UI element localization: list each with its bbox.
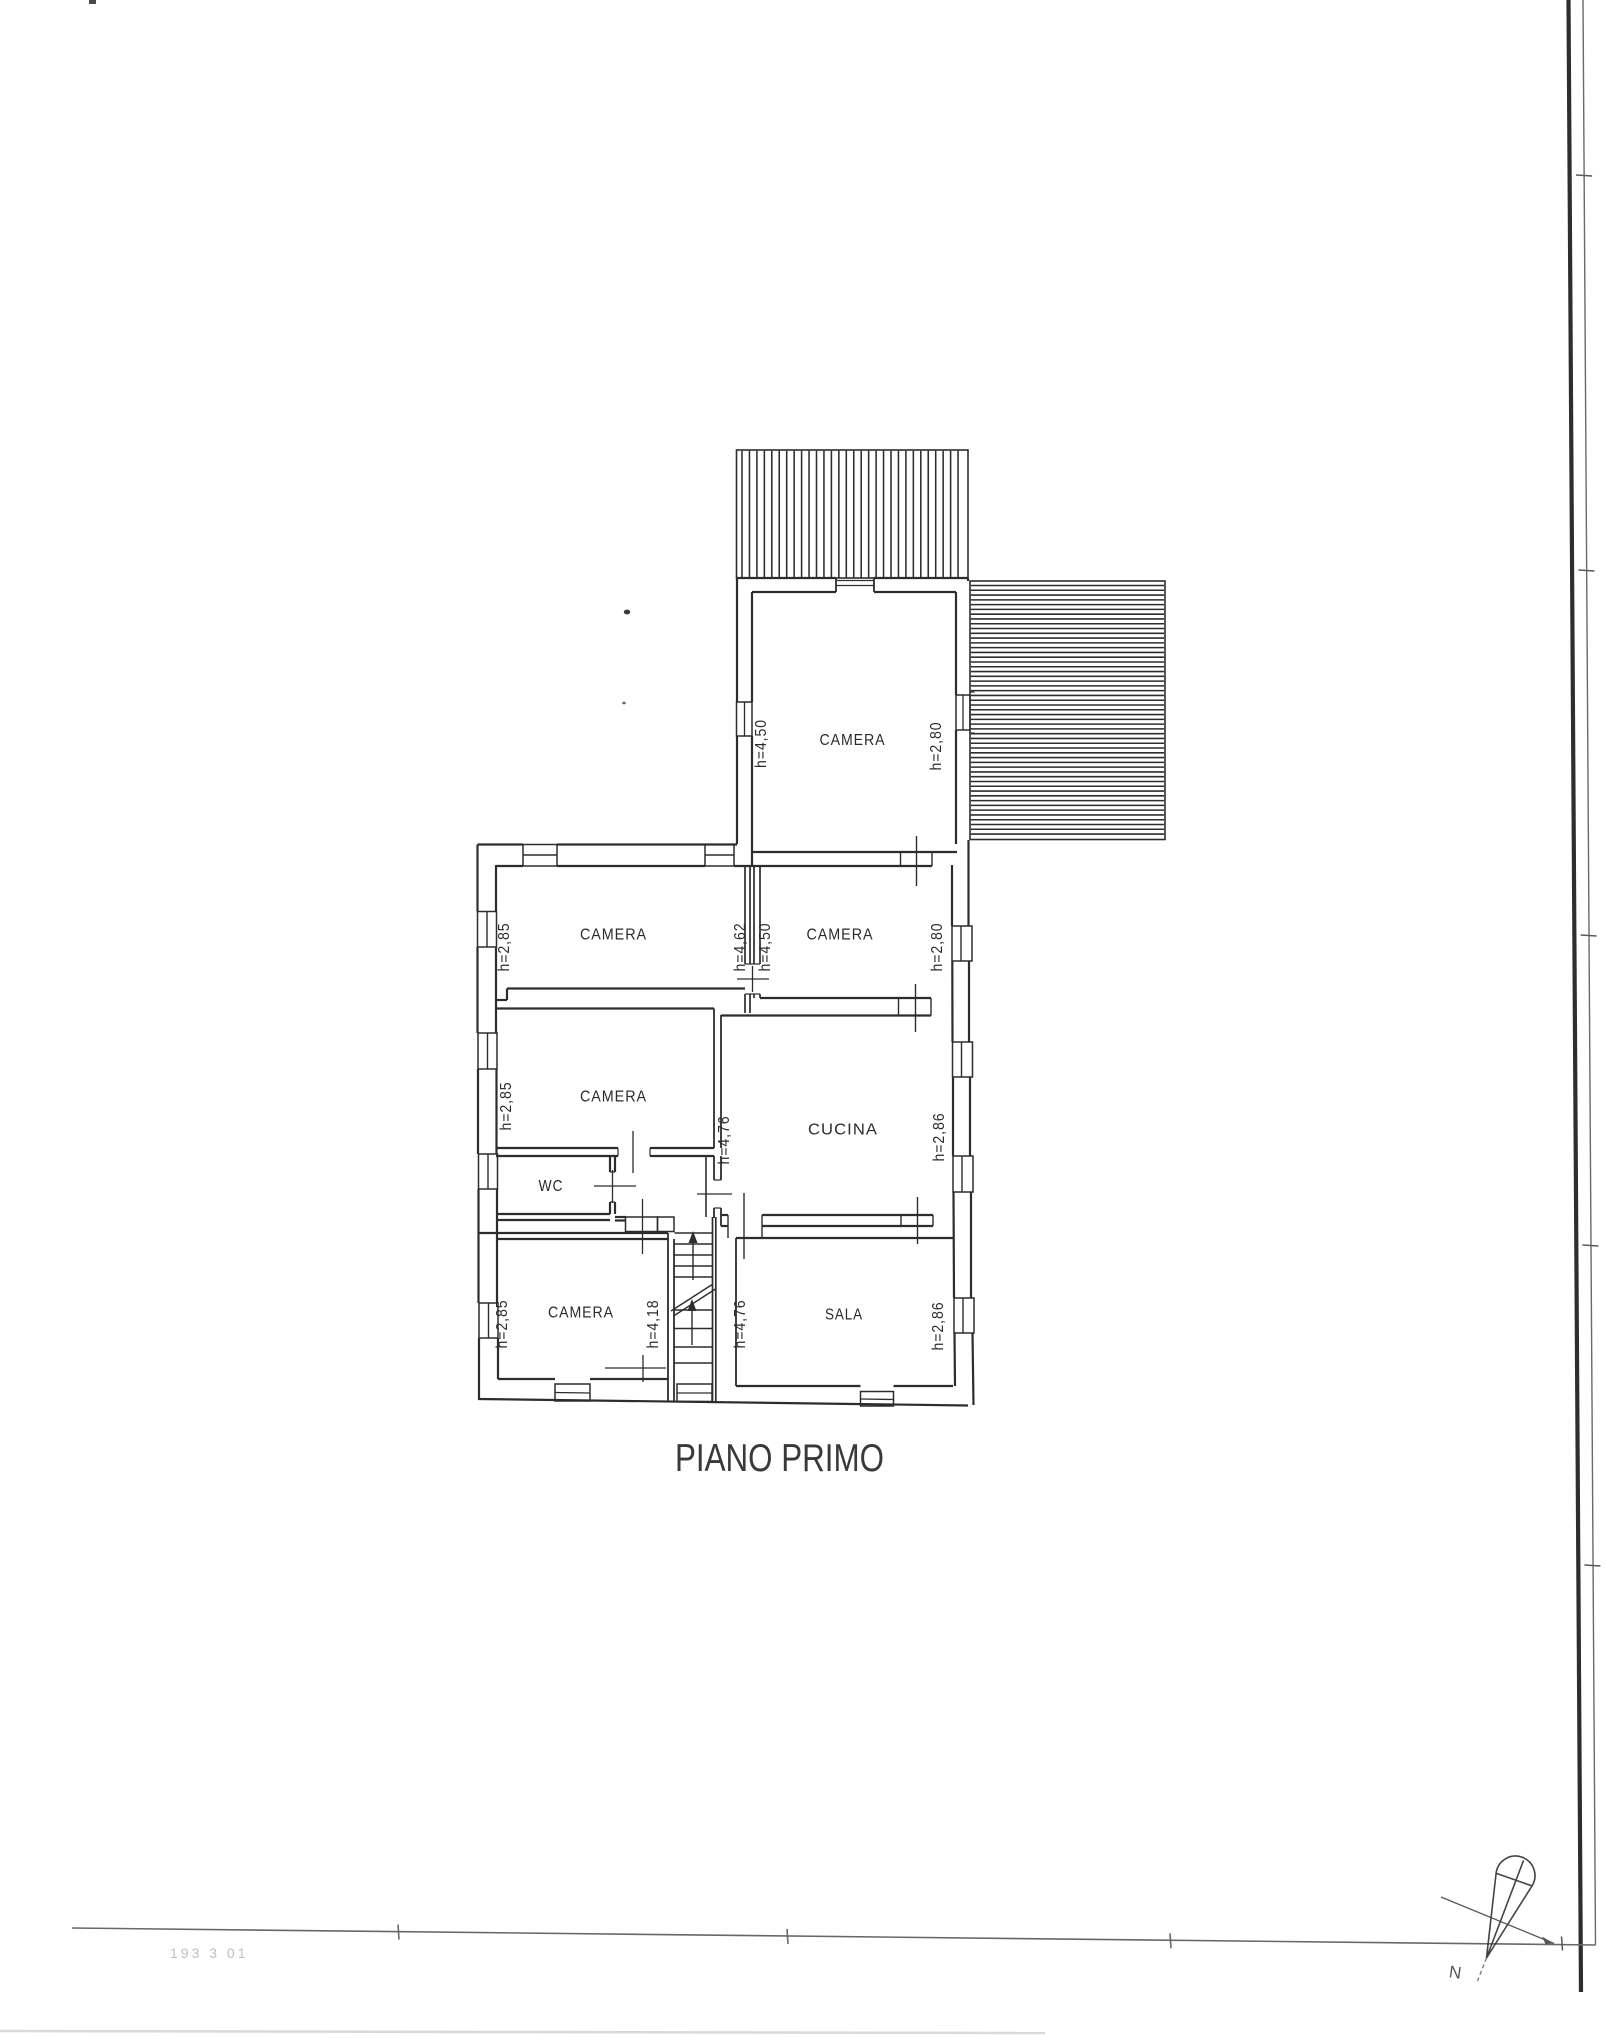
svg-text:h=2,80: h=2,80 — [928, 722, 945, 771]
svg-text:h=4,62: h=4,62 — [732, 923, 749, 972]
svg-text:CUCINA: CUCINA — [808, 1122, 878, 1139]
svg-text:CAMERA: CAMERA — [807, 927, 874, 944]
svg-text:CAMERA: CAMERA — [580, 1089, 647, 1106]
svg-text:CAMERA: CAMERA — [580, 927, 647, 944]
svg-text:h=2,86: h=2,86 — [931, 1113, 948, 1162]
svg-text:h=2,80: h=2,80 — [929, 923, 946, 972]
svg-text:h=2,85: h=2,85 — [496, 923, 513, 972]
svg-text:WC: WC — [539, 1178, 564, 1195]
svg-text:N: N — [1448, 1962, 1464, 1983]
svg-text:PIANO PRIMO: PIANO PRIMO — [675, 1437, 884, 1480]
svg-text:CAMERA: CAMERA — [548, 1305, 614, 1322]
svg-text:h=4,50: h=4,50 — [753, 719, 770, 768]
svg-text:SALA: SALA — [825, 1307, 863, 1324]
svg-text:h=2,85: h=2,85 — [494, 1300, 511, 1349]
svg-text:h=4,18: h=4,18 — [645, 1300, 662, 1349]
svg-text:h=2,85: h=2,85 — [498, 1082, 515, 1131]
svg-text:CAMERA: CAMERA — [820, 732, 886, 749]
svg-text:h=4,76: h=4,76 — [732, 1300, 749, 1349]
svg-text:h=4,50: h=4,50 — [757, 923, 774, 972]
svg-text:h=4,76: h=4,76 — [716, 1116, 733, 1165]
svg-text:193 3 01: 193 3 01 — [170, 1945, 249, 1961]
svg-text:h=2,86: h=2,86 — [930, 1302, 947, 1351]
